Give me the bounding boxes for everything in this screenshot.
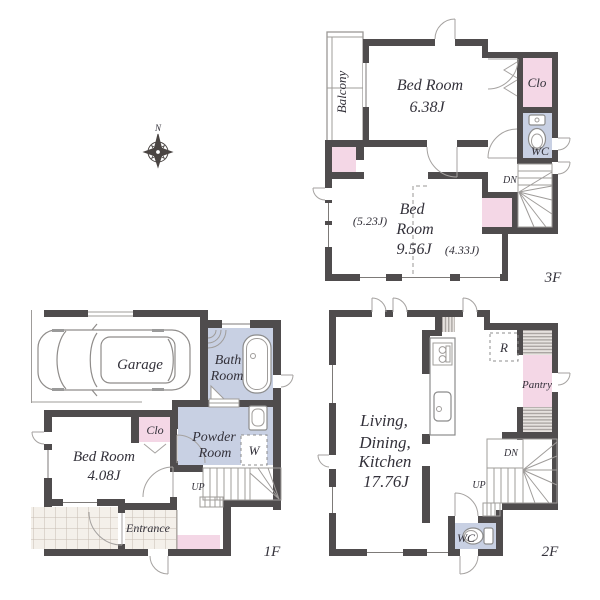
- plan-shape: [329, 403, 336, 455]
- kitchen-counter: [430, 338, 455, 435]
- plan-shape: [363, 39, 369, 63]
- plan-shape: [44, 310, 88, 317]
- washer-label: W: [249, 443, 261, 458]
- plan-shape: [460, 556, 478, 574]
- plan-shape: [463, 298, 477, 312]
- plan-shape: [512, 198, 518, 227]
- plan-shape: [170, 443, 177, 467]
- plan-shape: [482, 52, 558, 58]
- plan-shape: [478, 516, 503, 523]
- bathroom-label-line1: Bath: [215, 353, 241, 368]
- plan-shape: [118, 507, 125, 513]
- plan-shape: [558, 138, 570, 150]
- plan-shape: [558, 373, 570, 385]
- bathtub-icon: [243, 335, 271, 393]
- plan-shape: [205, 497, 220, 507]
- plan-shape: [502, 227, 508, 281]
- plan-shape: [552, 162, 558, 174]
- plan-shape: [44, 410, 131, 417]
- bedroom1-3f-label: Bed Room: [397, 77, 463, 94]
- plan-shape: [422, 336, 430, 374]
- down-3f-label: DN: [502, 175, 518, 186]
- floor-label-1f: 1F: [264, 544, 282, 560]
- plan-shape: [332, 172, 364, 179]
- up-2f-label: UP: [472, 480, 485, 491]
- plan-shape: [223, 500, 231, 556]
- bedroom2-3f-label-line1: Bed: [400, 201, 426, 218]
- plan-shape: [487, 503, 495, 516]
- plan-shape: [504, 80, 517, 96]
- plan-shape: [168, 549, 223, 556]
- bedroom2-3f-label-line2: Room: [395, 221, 433, 238]
- plan-shape: [478, 549, 503, 556]
- plan-shape: [448, 516, 455, 556]
- plan-shape: [356, 147, 364, 160]
- plan-shape: [318, 455, 329, 467]
- plan-shape: [386, 274, 402, 281]
- fridge-label: R: [499, 340, 508, 355]
- floor-plan-page: N: [0, 0, 600, 600]
- plan-shape: [313, 188, 325, 200]
- plan-shape: [325, 140, 427, 147]
- porch-tiles: [31, 507, 118, 549]
- entrance-label: Entrance: [125, 521, 171, 535]
- plan-shape: [393, 298, 407, 312]
- plan-shape: [329, 469, 336, 487]
- plan-shape: [250, 320, 273, 328]
- closet-1f-label: Clo: [146, 423, 163, 437]
- plan-shape: [517, 58, 523, 107]
- stairs-3f: [518, 164, 552, 227]
- range-hood-vent: [442, 315, 455, 332]
- plan-shape: [484, 528, 493, 544]
- plan-shape: [435, 19, 455, 39]
- bedroom2-3f-subsize-right: (4.33J): [445, 243, 479, 257]
- plan-shape: [144, 134, 172, 167]
- closet-3f-stairs: [482, 198, 512, 227]
- floor-label-2f: 2F: [542, 544, 560, 560]
- plan-shape: [329, 310, 336, 365]
- plan-shape: [482, 227, 558, 234]
- plan-shape: [517, 113, 523, 158]
- bedroom2-3f-subsize-left: (5.23J): [353, 214, 387, 228]
- wc-2f-label: WC: [457, 531, 476, 545]
- up-1f-label: UP: [191, 482, 204, 493]
- plan-shape: [455, 493, 478, 516]
- plan-shape: [144, 444, 166, 453]
- plan-shape: [325, 274, 360, 281]
- plan-shape: [482, 192, 518, 198]
- plan-shape: [281, 375, 293, 387]
- bedroom-1f-size: 4.08J: [88, 468, 122, 484]
- bedroom-1f-label: Bed Room: [73, 449, 135, 465]
- plan-shape: [502, 432, 558, 439]
- plan-shape: [156, 150, 161, 155]
- plan-shape: [519, 172, 552, 227]
- powder-room-label-line1: Powder: [191, 430, 236, 445]
- plan-shape: [57, 331, 66, 389]
- floor-label-3f: 3F: [544, 270, 563, 286]
- floor-plan-1f: Garage Bath Room Clo Bed Room 4.08J Powd…: [31, 310, 293, 574]
- wc-3f-label: WC: [531, 144, 550, 158]
- pantry-shelf-top: [523, 330, 552, 355]
- plan-shape: [44, 410, 52, 432]
- plan-shape: [403, 549, 427, 556]
- plan-shape: [518, 171, 552, 185]
- floor-plan-2f: Living, Dining, Kitchen 17.76J R Pantry …: [318, 298, 570, 574]
- plan-shape: [500, 274, 508, 281]
- plan-shape: [422, 434, 430, 444]
- plan-shape: [88, 312, 133, 316]
- plan-shape: [363, 39, 435, 46]
- plan-shape: [210, 468, 250, 500]
- plan-shape: [552, 373, 558, 392]
- plan-shape: [44, 444, 52, 450]
- plan-shape: [517, 107, 558, 113]
- down-2f-label: DN: [503, 448, 519, 459]
- plan-shape: [488, 59, 518, 89]
- bathroom-label-line2: Room: [210, 369, 244, 384]
- powder-room-label-line2: Room: [198, 446, 232, 461]
- plan-shape: [44, 549, 148, 556]
- plan-shape: [44, 499, 63, 506]
- plan-shape: [329, 455, 336, 469]
- plan-shape: [428, 172, 488, 179]
- plan-shape: [488, 129, 517, 158]
- floor-plan-drawing: N: [0, 0, 600, 600]
- plan-shape: [372, 298, 386, 312]
- ldk-label-line2: Dining,: [358, 433, 410, 452]
- plan-shape: [329, 513, 336, 556]
- plan-shape: [552, 323, 558, 373]
- plan-shape: [178, 465, 203, 472]
- garage-label: Garage: [117, 357, 163, 373]
- plan-shape: [150, 556, 168, 574]
- plan-shape: [457, 140, 488, 147]
- plan-shape: [223, 500, 281, 507]
- plan-shape: [133, 310, 205, 317]
- washbasin-icon: [249, 406, 267, 430]
- plan-shape: [422, 466, 430, 523]
- plan-shape: [450, 274, 460, 281]
- closet-3f-label: Clo: [528, 75, 547, 90]
- plan-shape: [502, 503, 558, 510]
- ldk-label-line3: Kitchen: [358, 452, 412, 471]
- compass-rose: N: [144, 123, 172, 167]
- plan-shape: [487, 439, 557, 503]
- pantry-shelf-bottom: [523, 407, 552, 435]
- plan-shape: [273, 375, 281, 388]
- plan-shape: [422, 330, 442, 336]
- plan-shape: [273, 320, 281, 375]
- ldk-size: 17.76J: [363, 472, 410, 491]
- car-icon: [38, 324, 190, 396]
- plan-shape: [168, 339, 173, 381]
- ldk-label-line1: Living,: [359, 411, 408, 430]
- sink-icon: [434, 392, 451, 421]
- plan-shape: [118, 503, 177, 510]
- bedroom2-3f-size: 9.56J: [396, 241, 432, 258]
- compass-north-label: N: [154, 123, 162, 133]
- plan-shape: [44, 432, 52, 444]
- plan-shape: [517, 323, 523, 355]
- plan-shape: [552, 138, 558, 150]
- shoe-cabinet-1f: [175, 535, 220, 550]
- plan-shape: [529, 115, 545, 125]
- closet-3f-hall: [332, 147, 356, 172]
- pantry-label: Pantry: [521, 379, 552, 391]
- plan-shape: [170, 410, 177, 443]
- plan-shape: [517, 158, 558, 164]
- plan-shape: [523, 442, 557, 503]
- plan-shape: [90, 333, 97, 387]
- bedroom1-3f-size: 6.38J: [409, 99, 445, 116]
- plan-shape: [504, 62, 517, 78]
- floor-plan-3f: Balcony Bed Room 6.38J Clo WC DN (5.23J)…: [313, 19, 570, 286]
- plan-shape: [205, 320, 222, 328]
- plan-shape: [325, 188, 332, 200]
- plan-shape: [558, 162, 570, 174]
- plan-shape: [143, 467, 173, 497]
- balcony-label: Balcony: [334, 70, 349, 113]
- plan-shape: [32, 432, 44, 444]
